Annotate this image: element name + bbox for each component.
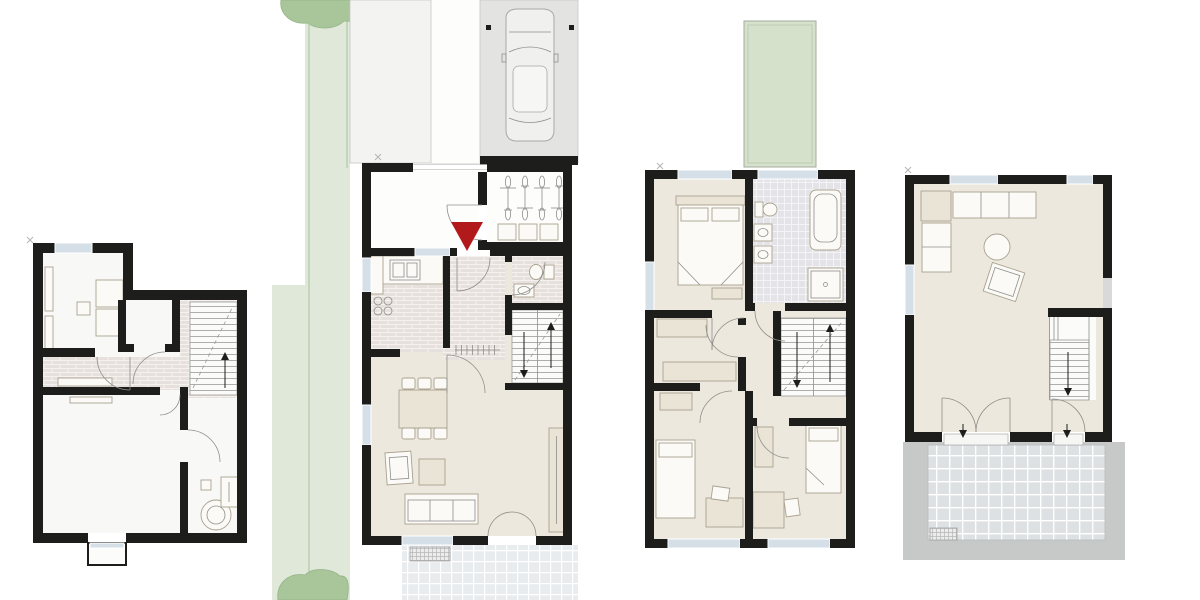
pillow [659, 443, 692, 457]
window [402, 536, 453, 545]
wardrobe-icon [663, 362, 736, 381]
chair-icon [402, 428, 415, 439]
pillow [809, 428, 838, 441]
entry-walkway [431, 0, 480, 163]
chair-icon [418, 378, 431, 389]
window [950, 175, 998, 184]
chair-icon [402, 378, 415, 389]
pillow [712, 208, 739, 221]
washbasin-icon [754, 224, 772, 241]
window [645, 262, 654, 312]
wall-niche [1103, 278, 1112, 308]
master-bedroom-furniture [676, 196, 745, 299]
parking-space [480, 0, 578, 165]
chair-icon [434, 378, 447, 389]
waste-bin-icon [498, 224, 516, 240]
tall-cabinet-icon [549, 428, 564, 532]
chair-icon [711, 486, 730, 501]
garden-strip-lower [272, 285, 305, 600]
desk-icon [706, 498, 743, 527]
shower-icon [808, 268, 843, 301]
window [678, 170, 732, 179]
stairs-basement [190, 302, 237, 395]
headboard [676, 196, 745, 205]
plan-ground-floor [362, 163, 578, 600]
sideboard-icon [70, 397, 112, 403]
round-pouf-icon [984, 234, 1010, 260]
stairs-ground [512, 310, 563, 383]
window [415, 248, 450, 256]
sideboard-icon [58, 378, 112, 386]
window [668, 539, 740, 548]
floor-plan-sheet [0, 0, 1200, 600]
window [55, 243, 92, 253]
light-well [88, 543, 126, 565]
desk-icon [753, 492, 784, 528]
car-icon [502, 9, 558, 141]
toilet-icon [544, 265, 554, 279]
door-sill [1054, 434, 1083, 445]
window [362, 405, 371, 445]
dresser-icon [660, 393, 692, 410]
chair-icon [418, 428, 431, 439]
garden-strip [305, 0, 350, 600]
armchair-icon [385, 451, 413, 485]
side-table-icon [419, 459, 445, 485]
doormat-icon [410, 547, 450, 561]
floor-plan-canvas [0, 0, 1200, 600]
chair-icon [784, 498, 800, 517]
plan-upper-floor [645, 170, 855, 548]
hall-floor [443, 256, 505, 360]
door-sill [944, 434, 1008, 445]
waste-bin-icon [540, 224, 558, 240]
wardrobe-icon [657, 319, 707, 337]
toilet-icon [755, 202, 763, 217]
washbasin-icon [754, 246, 772, 263]
window [362, 258, 371, 292]
plan-basement [33, 243, 247, 565]
bench-icon [712, 288, 742, 299]
dining-set [399, 378, 447, 439]
green-roof-panel [744, 21, 816, 167]
chair-icon [434, 428, 447, 439]
doormat-icon [930, 528, 957, 540]
plan-studio [903, 175, 1125, 560]
shelf-icon [45, 267, 53, 311]
waste-bin-icon [519, 224, 537, 240]
room-storage [126, 300, 172, 344]
sofa-icon [405, 494, 478, 524]
terrace [928, 445, 1105, 540]
window [1067, 175, 1093, 184]
window [768, 539, 830, 548]
stairs-upper [781, 318, 846, 396]
pillow [681, 208, 708, 221]
window [758, 170, 818, 179]
window [905, 265, 914, 315]
window [90, 543, 124, 548]
dining-table-icon [399, 390, 447, 428]
